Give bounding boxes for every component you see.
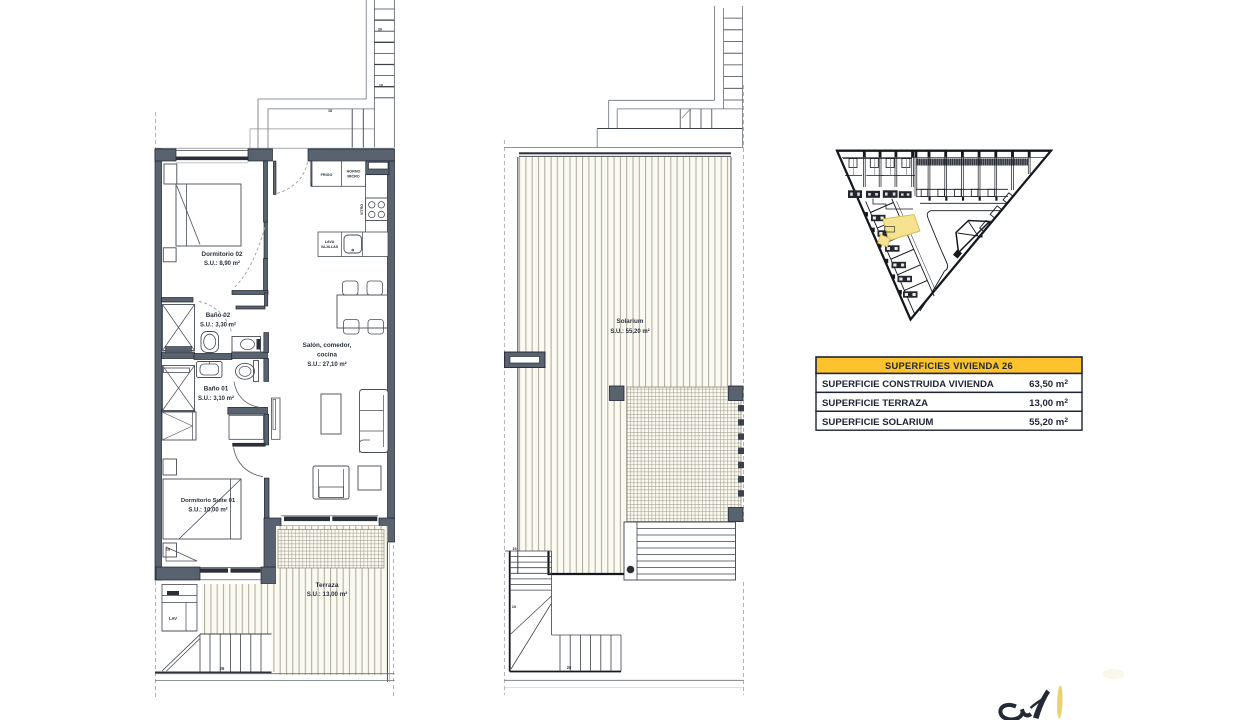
svg-text:26: 26 <box>220 666 225 671</box>
svg-text:18: 18 <box>166 547 171 552</box>
svg-text:Dormitorio 02: Dormitorio 02 <box>202 251 243 258</box>
svg-text:26: 26 <box>567 665 572 670</box>
svg-text:Terraza: Terraza <box>316 582 339 589</box>
svg-text:VAJILLAS: VAJILLAS <box>321 245 339 249</box>
svg-text:18: 18 <box>328 109 332 113</box>
svg-text:SUPERFICIES VIVIENDA 26: SUPERFICIES VIVIENDA 26 <box>885 361 1013 371</box>
svg-text:S.U.: 3,30 m²: S.U.: 3,30 m² <box>200 322 236 329</box>
svg-text:MICRO: MICRO <box>347 175 359 179</box>
svg-text:10: 10 <box>512 604 517 609</box>
svg-text:VITRO: VITRO <box>360 204 364 215</box>
svg-text:S.U.: 8,90 m²: S.U.: 8,90 m² <box>204 260 240 267</box>
svg-text:Solarium: Solarium <box>617 318 644 325</box>
svg-text:S.U.: 55,20 m²: S.U.: 55,20 m² <box>610 328 649 335</box>
svg-text:LAVA: LAVA <box>325 240 335 244</box>
svg-text:Baño 02: Baño 02 <box>206 312 231 319</box>
svg-text:HORNO: HORNO <box>347 170 361 174</box>
svg-text:S.U.: 10,00 m²: S.U.: 10,00 m² <box>188 507 227 514</box>
svg-text:16: 16 <box>512 546 517 551</box>
svg-text:Dormitorio Suite 01: Dormitorio Suite 01 <box>181 498 236 504</box>
svg-text:cocina: cocina <box>317 352 337 359</box>
svg-text:SUPERFICIE CONSTRUIDA VIVIENDA: SUPERFICIE CONSTRUIDA VIVIENDA <box>822 379 994 390</box>
svg-text:S.U.: 3,10 m²: S.U.: 3,10 m² <box>198 395 234 402</box>
svg-text:S.U.: 13,00 m²: S.U.: 13,00 m² <box>307 591 348 598</box>
svg-text:SUPERFICIE SOLARIUM: SUPERFICIE SOLARIUM <box>822 417 933 428</box>
svg-text:Baño 01: Baño 01 <box>204 386 229 393</box>
svg-text:Salón, comedor,: Salón, comedor, <box>303 342 352 349</box>
svg-text:10: 10 <box>379 84 383 88</box>
svg-text:26: 26 <box>378 28 382 32</box>
svg-text:63,50 m2: 63,50 m2 <box>1029 379 1068 390</box>
svg-text:FRIGO: FRIGO <box>321 173 333 177</box>
svg-text:LAV: LAV <box>169 616 177 621</box>
svg-text:SUPERFICIE TERRAZA: SUPERFICIE TERRAZA <box>822 398 928 409</box>
svg-text:13,00 m2: 13,00 m2 <box>1029 398 1068 409</box>
svg-text:S.U.: 27,10 m²: S.U.: 27,10 m² <box>307 361 346 368</box>
svg-text:55,20 m2: 55,20 m2 <box>1029 417 1068 428</box>
